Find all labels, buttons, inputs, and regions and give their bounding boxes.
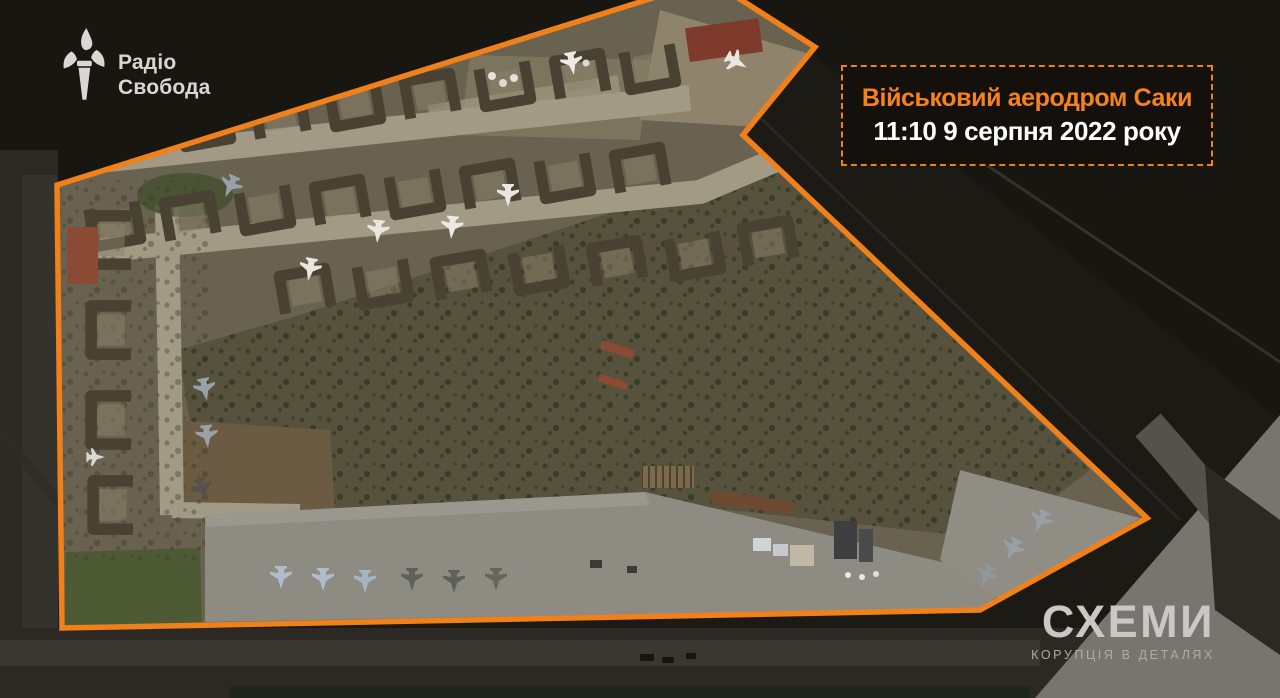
torch-icon — [60, 28, 108, 106]
radio-svoboda-logo: Радіо Свобода — [60, 28, 211, 106]
annotation-title: Військовий аеродром Саки — [862, 84, 1192, 113]
news-graphic: Радіо Свобода Військовий аеродром Саки 1… — [0, 0, 1280, 698]
radio-svoboda-line1: Радіо — [118, 50, 211, 75]
skhemy-tagline: КОРУПЦІЯ В ДЕТАЛЯХ — [1031, 648, 1215, 662]
annotation-timestamp: 11:10 9 серпня 2022 року — [873, 116, 1180, 147]
radio-svoboda-wordmark: Радіо Свобода — [118, 50, 211, 100]
skhemy-title: СХЕМИ — [1031, 599, 1215, 644]
annotation-box: Військовий аеродром Саки 11:10 9 серпня … — [841, 65, 1213, 166]
radio-svoboda-line2: Свобода — [118, 75, 211, 100]
skhemy-logo: СХЕМИ КОРУПЦІЯ В ДЕТАЛЯХ — [1031, 599, 1215, 662]
